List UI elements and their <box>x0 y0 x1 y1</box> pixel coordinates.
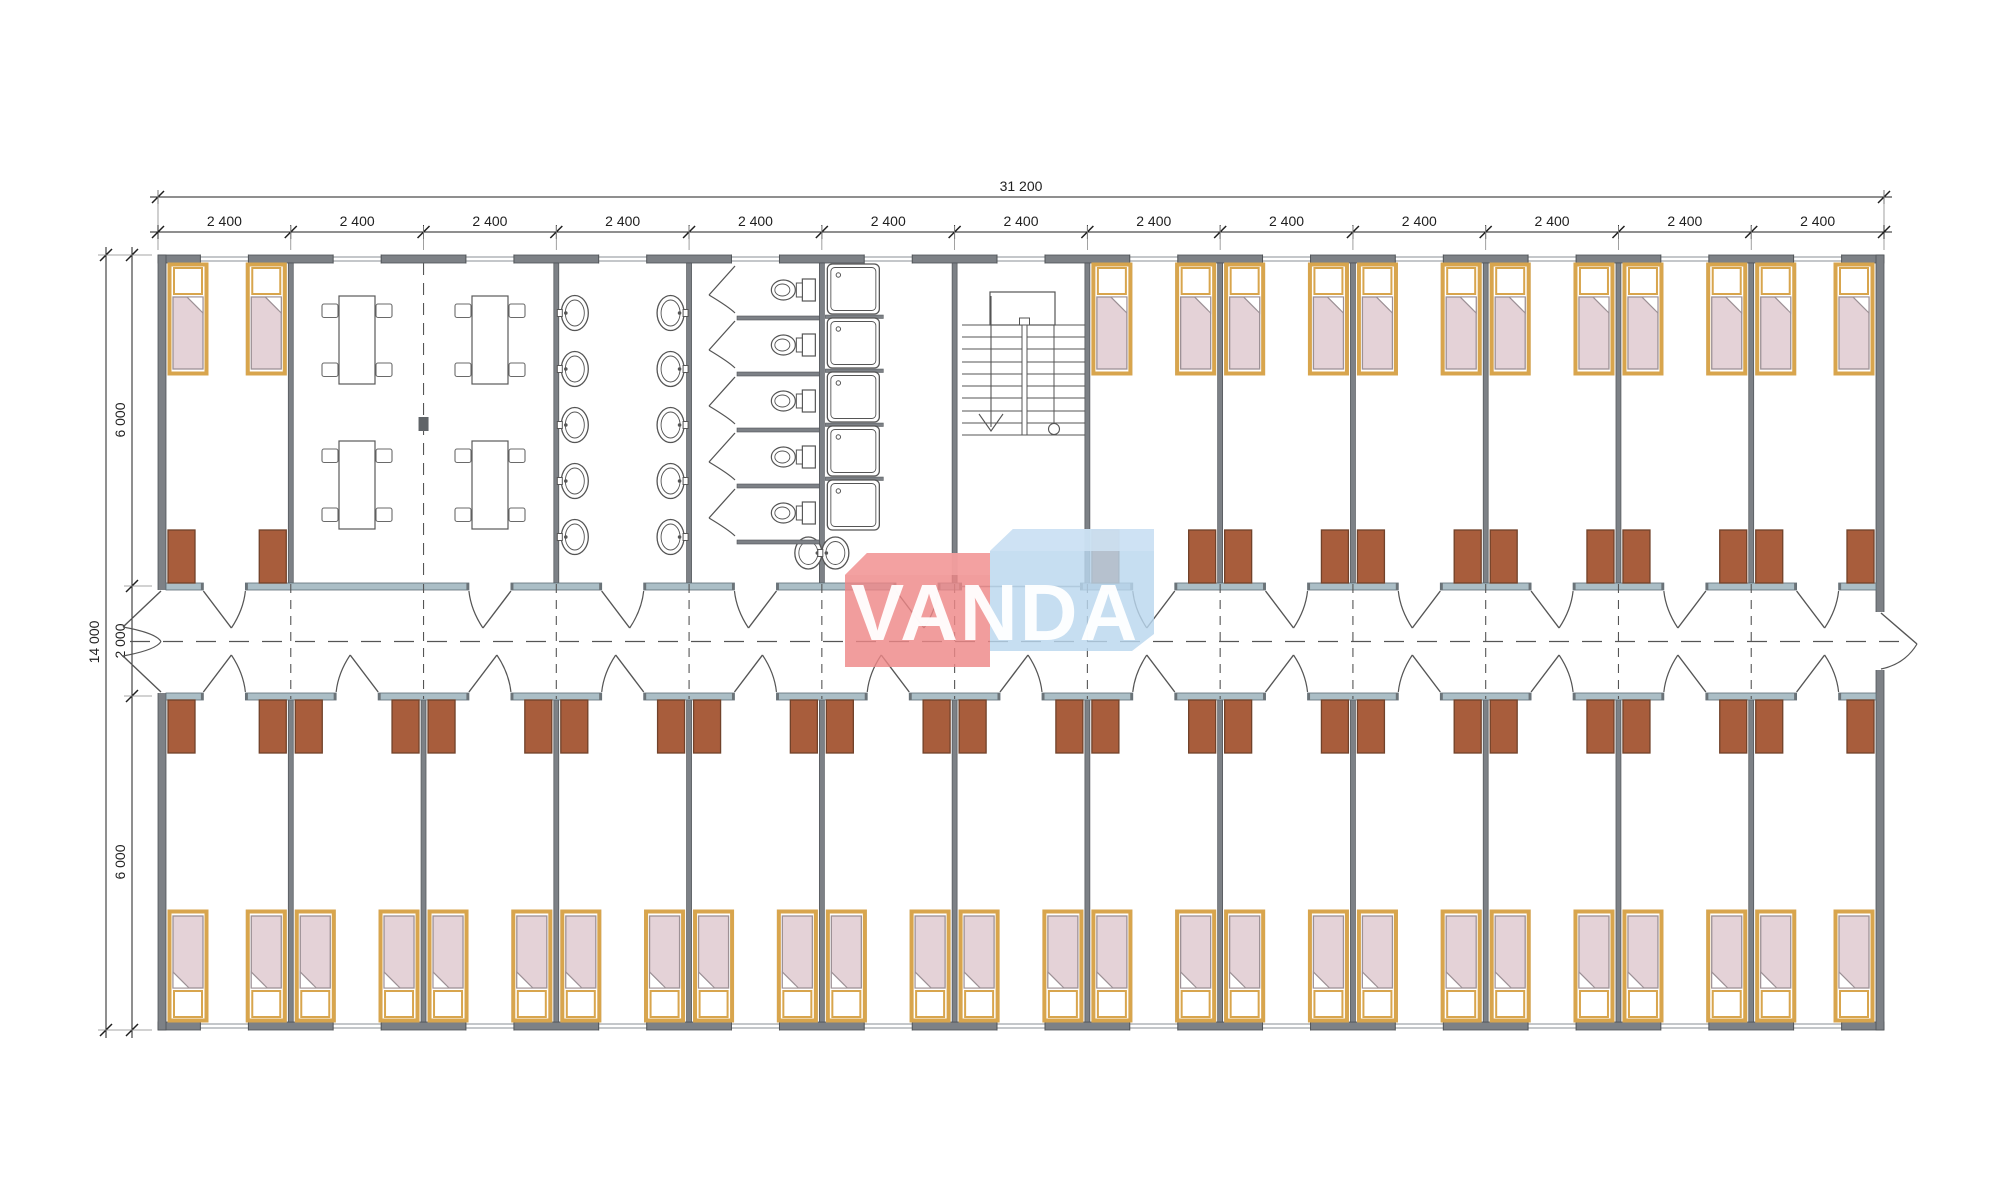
bed <box>1176 910 1216 1022</box>
bed <box>826 910 866 1022</box>
sink <box>557 464 588 499</box>
floor-plan-canvas: 31 2002 4002 4002 4002 4002 4002 4002 40… <box>0 0 2000 1200</box>
sink <box>557 408 588 443</box>
dim-label: 6 000 <box>112 402 128 437</box>
bed <box>295 910 335 1022</box>
dining-table <box>455 441 525 529</box>
bed <box>1043 910 1083 1022</box>
dim-label: 2 400 <box>1003 213 1038 229</box>
bed <box>1441 263 1481 375</box>
bed <box>1756 263 1796 375</box>
bed <box>1623 263 1663 375</box>
bed <box>1357 910 1397 1022</box>
bed <box>910 910 950 1022</box>
dim-label: 6 000 <box>112 844 128 879</box>
sink <box>657 408 688 443</box>
bed <box>959 910 999 1022</box>
bed <box>379 910 419 1022</box>
dining-table <box>322 441 392 529</box>
dim-label: 2 400 <box>738 213 773 229</box>
bed <box>1707 263 1747 375</box>
bed <box>512 910 552 1022</box>
dim-label: 2 400 <box>1402 213 1437 229</box>
sink <box>657 352 688 387</box>
bed <box>1357 263 1397 375</box>
bed <box>168 910 208 1022</box>
bed <box>1490 263 1530 375</box>
dim-label: 2 400 <box>472 213 507 229</box>
bed <box>1623 910 1663 1022</box>
dining-table <box>322 296 392 384</box>
bed <box>1756 910 1796 1022</box>
sink <box>657 520 688 555</box>
dim-label: 2 400 <box>605 213 640 229</box>
dim-label: 2 400 <box>1800 213 1835 229</box>
dim-label: 2 400 <box>1667 213 1702 229</box>
bed <box>1176 263 1216 375</box>
vanda-watermark: VANDA <box>845 529 1154 667</box>
bed <box>645 910 685 1022</box>
dim-label: 2 400 <box>1535 213 1570 229</box>
dim-label: 2 400 <box>1136 213 1171 229</box>
dim-label: 2 400 <box>871 213 906 229</box>
dim-label: 14 000 <box>86 620 102 663</box>
sink <box>557 296 588 331</box>
bed <box>428 910 468 1022</box>
sink <box>657 464 688 499</box>
bed <box>1308 910 1348 1022</box>
dim-label: 31 200 <box>1000 178 1043 194</box>
bed <box>246 910 286 1022</box>
bed <box>777 910 817 1022</box>
bed <box>1225 910 1265 1022</box>
bed <box>1834 910 1874 1022</box>
common-room <box>419 263 429 583</box>
bed <box>1574 263 1614 375</box>
bed <box>1092 910 1132 1022</box>
dim-label: 2 400 <box>340 213 375 229</box>
shower-room <box>825 264 883 530</box>
bed <box>1574 910 1614 1022</box>
bed <box>1490 910 1530 1022</box>
bed <box>1441 910 1481 1022</box>
dim-label: 2 000 <box>112 623 128 658</box>
bed <box>1225 263 1265 375</box>
bed <box>694 910 734 1022</box>
bed <box>561 910 601 1022</box>
bed <box>168 263 208 375</box>
dim-label: 2 400 <box>1269 213 1304 229</box>
dim-label: 2 400 <box>207 213 242 229</box>
bed <box>1834 263 1874 375</box>
dining-table <box>455 296 525 384</box>
sink <box>557 520 588 555</box>
corridor-wall <box>166 693 1876 700</box>
sink <box>657 296 688 331</box>
bed <box>246 263 286 375</box>
sink <box>557 352 588 387</box>
bed <box>1707 910 1747 1022</box>
bed <box>1308 263 1348 375</box>
watermark-text: VANDA <box>851 568 1140 657</box>
wc-stalls <box>709 266 819 544</box>
stairwell <box>962 292 1085 435</box>
bed <box>1092 263 1132 375</box>
floor-plan-svg: 31 2002 4002 4002 4002 4002 4002 4002 40… <box>0 0 2000 1200</box>
